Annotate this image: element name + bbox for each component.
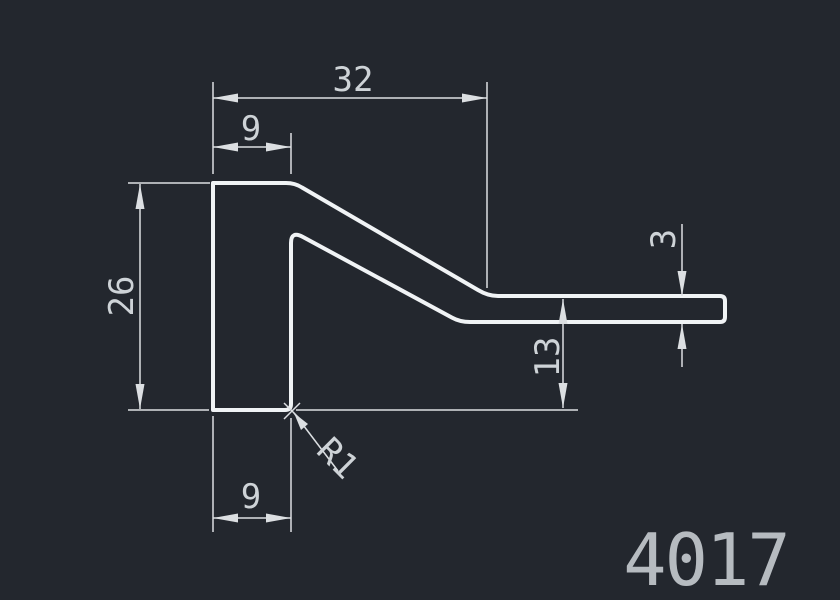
- dimension-value-overall-width: 32: [333, 60, 374, 100]
- dimension-value-top-leg-width: 9: [241, 109, 261, 149]
- dimension-value-left-height: 26: [102, 276, 142, 317]
- part-number-label: 4017: [623, 518, 788, 600]
- dimension-value-step-height: 13: [528, 337, 568, 378]
- dimension-value-bottom-leg-width: 9: [241, 477, 261, 517]
- cad-drawing-canvas: 32 9 26 13: [0, 0, 840, 600]
- dimension-value-flange-thickness: 3: [644, 229, 684, 249]
